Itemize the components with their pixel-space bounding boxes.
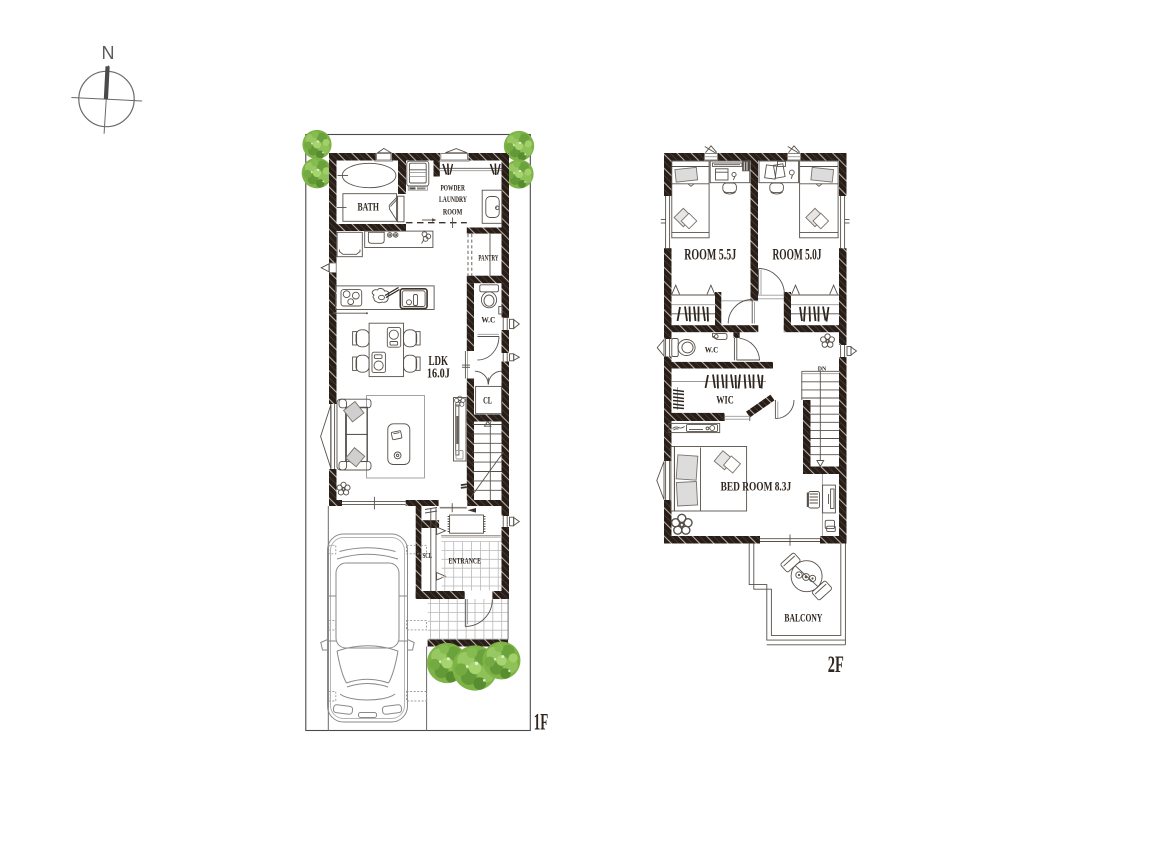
svg-text:LAUNDRY: LAUNDRY <box>439 194 468 204</box>
svg-text:1F: 1F <box>534 710 549 735</box>
svg-text:POWDER: POWDER <box>440 183 465 193</box>
svg-text:BALCONY: BALCONY <box>784 613 822 625</box>
svg-text:W.C: W.C <box>705 346 719 355</box>
svg-text:CL: CL <box>483 396 492 406</box>
svg-text:SCL: SCL <box>423 552 433 560</box>
svg-text:16.0J: 16.0J <box>427 366 450 381</box>
svg-text:ROOM 5.0J: ROOM 5.0J <box>773 247 822 264</box>
svg-text:ROOM: ROOM <box>443 207 463 217</box>
svg-text:ROOM 5.5J: ROOM 5.5J <box>684 247 736 264</box>
svg-text:W.C: W.C <box>481 316 495 325</box>
svg-text:WIC: WIC <box>716 395 734 407</box>
svg-text:N: N <box>102 43 115 63</box>
svg-text:2F: 2F <box>828 652 844 677</box>
svg-text:ENTRANCE: ENTRANCE <box>448 556 481 566</box>
svg-text:DN: DN <box>818 366 827 373</box>
svg-text:BATH: BATH <box>357 199 379 213</box>
svg-text:PANTRY: PANTRY <box>478 254 498 263</box>
svg-text:BED ROOM 8.3J: BED ROOM 8.3J <box>721 479 792 494</box>
